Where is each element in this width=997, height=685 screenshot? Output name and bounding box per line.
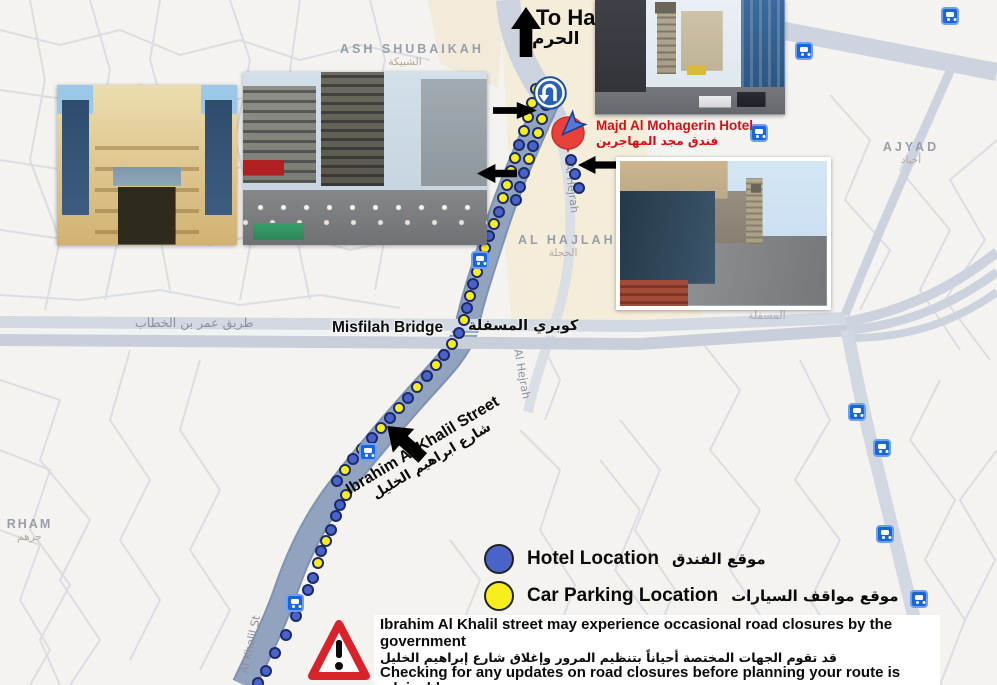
area-name-arabic: أجياد [876,154,946,166]
warning-line-2-en: Checking for any updates on road closure… [380,665,934,685]
area-name-arabic: جرهم [2,531,57,543]
road-label-omar-bin-al-khattab: طريق عمر بن الخطاب [135,315,253,330]
warning-triangle-icon [308,618,370,684]
hotel-location-swatch [484,544,514,574]
bus-stop-icon[interactable] [876,525,894,543]
photo-hotel-entrance [616,157,831,310]
legend-row-hotel: Hotel Location موقع الفندق [484,544,898,574]
photo-street-view-clock-tower [595,0,785,115]
legend-hotel-label: Hotel Location [527,548,659,570]
area-label-ajyad: AJYAD أجياد [876,140,946,166]
warning-line-1-ar: قد تقوم الجهات المختصة أحياناً بتنظيم ال… [380,651,934,665]
bus-stop-icon[interactable] [359,443,377,461]
to-haram-label-arabic: الحرم [532,29,580,49]
area-label-rham: RHAM جرهم [2,517,57,543]
area-name-arabic: الشبيكة [340,56,470,68]
hotel-name-label: Majd Al Mohagerin Hotel فندق مجد المهاجر… [596,118,753,148]
bus-stop-icon[interactable] [910,590,928,608]
area-name: RHAM [7,517,53,531]
car-parking-swatch [484,581,514,611]
area-name: AL HAJLAH [518,233,616,247]
bus-stop-icon[interactable] [286,594,304,612]
area-name: ASH SHUBAIKAH [340,42,484,56]
hotel-name-en: Majd Al Mohagerin Hotel [596,118,753,133]
legend-parking-label: Car Parking Location [527,585,718,607]
photo-hotel-building-facade [57,85,237,245]
area-label-al-hajlah: AL HAJLAH الحجلة [518,233,608,259]
legend: Hotel Location موقع الفندق Car Parking L… [484,544,898,618]
photo-street-view-ibrahim-al-khalil [243,72,487,245]
area-name: AJYAD [883,140,939,154]
bus-stop-icon[interactable] [873,439,891,457]
bridge-label-en: Misfilah Bridge [332,319,443,337]
warning-line-1-en: Ibrahim Al Khalil street may experience … [380,617,934,651]
area-name-arabic: الحجلة [518,247,608,259]
road-label-misfilah-faint: المسفلة [748,309,786,322]
bus-stop-icon[interactable] [941,7,959,25]
legend-row-parking: Car Parking Location موقع مواقف السيارات [484,581,898,611]
bus-stop-icon[interactable] [795,42,813,60]
road-closure-warning: Ibrahim Al Khalil street may experience … [374,615,940,685]
bridge-label-ar: كوبري المسفلة [468,318,578,334]
legend-parking-label-arabic: موقع مواقف السيارات [731,587,898,605]
hotel-name-ar: فندق مجد المهاجرين [596,134,753,148]
route-map-page: ASH SHUBAIKAH الشبيكة AL HAJLAH الحجلة A… [0,0,997,685]
bus-stop-icon[interactable] [471,251,489,269]
bus-stop-icon[interactable] [848,403,866,421]
u-turn-sign-icon [534,77,566,109]
area-label-ash-shubaikah: ASH SHUBAIKAH الشبيكة [340,42,470,68]
legend-hotel-label-arabic: موقع الفندق [672,550,766,568]
